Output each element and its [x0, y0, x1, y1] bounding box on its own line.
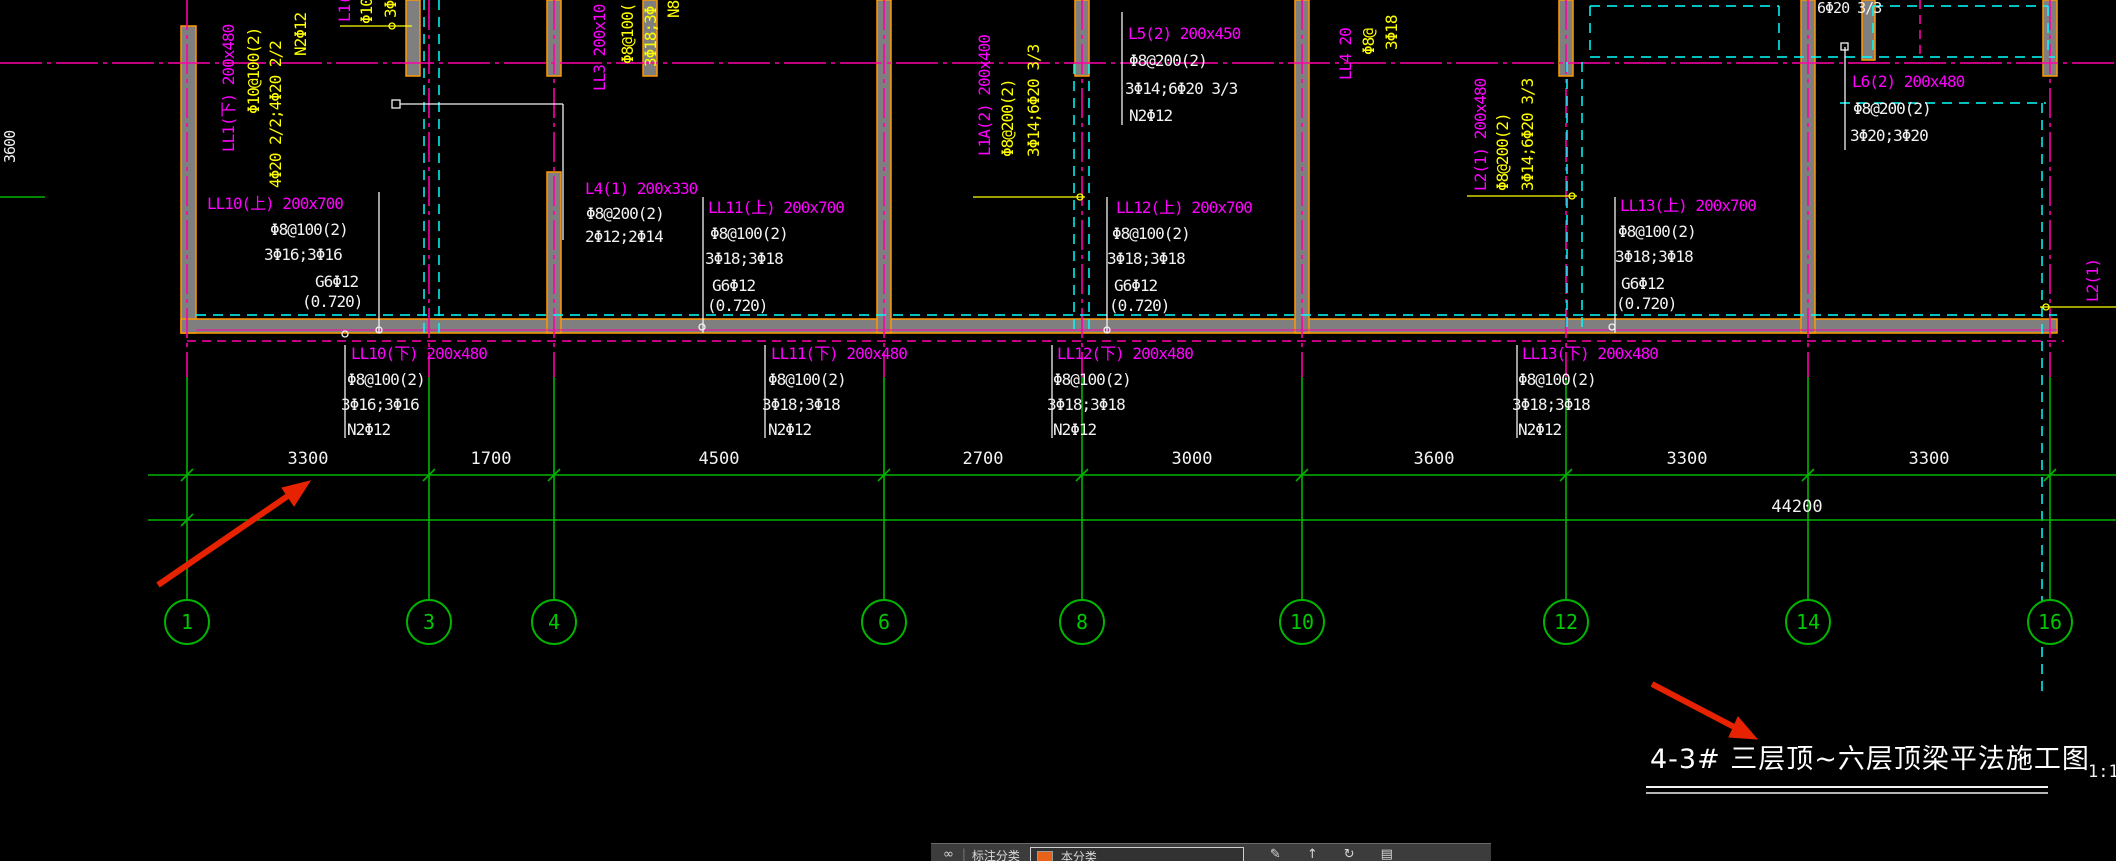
beam-stirrup-vertical: Φ10@100(2)	[246, 28, 262, 114]
dimension-text: 4500	[699, 451, 740, 468]
beam-elevation: (0.720)	[1109, 298, 1169, 314]
category-label: 本分类	[1061, 848, 1097, 861]
beam-label: LL12(下) 200x480	[1057, 346, 1193, 362]
color-swatch-icon	[1037, 851, 1053, 861]
grid-number: 4	[548, 610, 560, 634]
edit-pen-icon[interactable]: ✎	[1270, 847, 1281, 861]
beam-side-bars-vertical: N8	[666, 1, 682, 18]
beam-stirrup: Φ8@200(2)	[1853, 101, 1931, 117]
beam-label: L6(2) 200x480	[1852, 74, 1964, 90]
beam-bars: 3Φ18;3Φ18	[705, 251, 783, 267]
beam-stirrup: Φ8@200(2)	[1129, 53, 1207, 69]
beam-side-bars: N2Φ12	[768, 422, 811, 438]
beam-label-vertical: L1(	[337, 0, 353, 22]
beam-bars: 3Φ16;3Φ16	[341, 397, 419, 413]
dimension-text: 3600	[1414, 451, 1455, 468]
beam-stirrup: Φ8@100(2)	[710, 226, 788, 242]
beam-bars-vertical: 4Φ20 2/2;4Φ20 2/2	[268, 41, 284, 188]
beam-stirrup: Φ8@100(2)	[347, 372, 425, 388]
beam-label: LL13(下) 200x480	[1522, 346, 1658, 362]
beam-bars-vertical: 3Φ	[383, 1, 399, 18]
beam-bars-vertical: 3Φ14;6Φ20 3/3	[1026, 45, 1042, 157]
beam-side-bars: G6Φ12	[1621, 276, 1664, 292]
grid-number: 1	[181, 610, 193, 634]
beam-stirrup: Φ8@100(2)	[1112, 226, 1190, 242]
grid-number: 8	[1076, 610, 1088, 634]
beam-bars: 3Φ18;3Φ18	[1615, 249, 1693, 265]
grid-bubble: 4	[531, 599, 577, 645]
grid-number: 14	[1796, 610, 1820, 634]
beam-label: L5(2) 200x450	[1128, 26, 1240, 42]
beam-stirrup-vertical: Φ8@200(2)	[1495, 113, 1511, 191]
beam-label: LL12(上) 200x700	[1116, 200, 1252, 216]
beam-label-vertical: L2(1) 200x480	[1473, 79, 1489, 191]
beam-bars: 3Φ18;3Φ18	[1047, 397, 1125, 413]
dimension-text: 3300	[1909, 451, 1950, 468]
leader-lines	[342, 12, 2048, 793]
beam-bars: 3Φ18;3Φ18	[1107, 251, 1185, 267]
beam-label: LL13(上) 200x700	[1620, 198, 1756, 214]
grid-bubble: 12	[1543, 599, 1589, 645]
refresh-icon[interactable]: ↻	[1344, 847, 1355, 861]
dimension-text: 2700	[963, 451, 1004, 468]
grid-bubble: 14	[1785, 599, 1831, 645]
dimension-text: 1700	[471, 451, 512, 468]
grid-bubble: 1	[164, 599, 210, 645]
beam-side-bars: N2Φ12	[1053, 422, 1096, 438]
beam-stirrup-vertical: Φ8@	[1361, 29, 1377, 55]
beam-side-bars: G6Φ12	[315, 274, 358, 290]
beam-label: LL11(上) 200x700	[708, 200, 844, 216]
dimension-text: 3300	[1667, 451, 1708, 468]
beam-stirrup: Φ8@200(2)	[586, 206, 664, 222]
beam-bars-vertical: 3Φ18;3Φ	[643, 7, 659, 67]
beam-bars: 3Φ18;3Φ18	[762, 397, 840, 413]
beam-stirrup-vertical: Φ8@100(	[620, 4, 636, 64]
beam-side-bars: N2Φ12	[347, 422, 390, 438]
drawing-title: 4-3# 三层顶~六层顶梁平法施工图	[1650, 746, 2090, 773]
rebar-note: 6Φ20 3/3	[1817, 1, 1881, 16]
dimension-text: 3300	[288, 451, 329, 468]
beam-bars: 3Φ16;3Φ16	[264, 247, 342, 263]
beam-bars-vertical: 3Φ14;6Φ20 3/3	[1520, 79, 1536, 191]
beam-stirrup: Φ8@100(2)	[1618, 224, 1696, 240]
beam-bars: 3Φ18;3Φ18	[1512, 397, 1590, 413]
printer-icon[interactable]: ▤	[1381, 847, 1393, 861]
beam-elevation: (0.720)	[707, 298, 767, 314]
beam-stirrup: Φ8@100(2)	[270, 222, 348, 238]
beam-label: LL10(上) 200x700	[207, 196, 343, 212]
grid-number: 16	[2038, 610, 2062, 634]
beam-elevation: (0.720)	[302, 294, 362, 310]
beam-label-vertical: LL3 200x10	[592, 5, 608, 91]
upload-arrow-icon[interactable]: ↑	[1307, 847, 1318, 861]
grid-number: 3	[423, 610, 435, 634]
grid-number: 6	[878, 610, 890, 634]
beam-bars: 2Φ12;2Φ14	[585, 229, 663, 245]
beam-bars: 3Φ14;6Φ20 3/3	[1125, 81, 1237, 97]
beam-label-vertical: LL1(下) 200x480	[221, 25, 237, 152]
beam-label: LL10(下) 200x480	[351, 346, 487, 362]
drawing-scale: 1:10	[2088, 764, 2116, 781]
category-selector[interactable]: 本分类	[1030, 847, 1244, 861]
beam-side-bars: G6Φ12	[1114, 278, 1157, 294]
dimension-text: 3000	[1172, 451, 1213, 468]
beam-side-bars: N2Φ12	[1518, 422, 1561, 438]
beam-label-vertical: L2(1)	[2085, 259, 2101, 302]
beam-label: LL11(下) 200x480	[771, 346, 907, 362]
cad-viewport: LL10(上) 200x700 Φ8@100(2) 3Φ16;3Φ16 G6Φ1…	[0, 0, 2116, 861]
annotation-category-label[interactable]: 标注分类	[972, 847, 1020, 861]
beam-bars: 3Φ20;3Φ20	[1850, 128, 1928, 144]
beam-stirrup-vertical: Φ8@200(2)	[1000, 79, 1016, 157]
grid-bubble: 16	[2027, 599, 2073, 645]
grid-bubble: 10	[1279, 599, 1325, 645]
beam-stirrup: Φ8@100(2)	[1053, 372, 1131, 388]
grid-bubble: 6	[861, 599, 907, 645]
grid-bubble: 3	[406, 599, 452, 645]
logo-icon: ∞	[943, 847, 954, 861]
beam-bars-vertical: 3Φ18	[1384, 15, 1400, 50]
beam-side-bars-vertical: N2Φ12	[293, 13, 309, 56]
beam-side-bars: G6Φ12	[712, 278, 755, 294]
grid-number: 12	[1554, 610, 1578, 634]
beam-stirrup: Φ8@100(2)	[1518, 372, 1596, 388]
total-dimension-text: 44200	[1771, 499, 1822, 516]
vertical-dimension-text: 3600	[3, 131, 18, 163]
grid-number: 10	[1290, 610, 1314, 634]
bottom-toolbar: ∞ | 标注分类 本分类 ✎ ↑ ↻ ▤	[931, 843, 1491, 861]
beam-label-vertical: L1A(2) 200x400	[977, 35, 993, 156]
beam-elevation: (0.720)	[1616, 296, 1676, 312]
beam-label-vertical: LL4 20	[1338, 28, 1354, 80]
beam-stirrup-vertical: Φ10	[359, 0, 375, 24]
toolbar-separator: |	[962, 847, 966, 861]
beam-side-bars: N2Φ12	[1129, 108, 1172, 124]
beam-label: L4(1) 200x330	[585, 181, 697, 197]
grid-bubble: 8	[1059, 599, 1105, 645]
beam-stirrup: Φ8@100(2)	[768, 372, 846, 388]
